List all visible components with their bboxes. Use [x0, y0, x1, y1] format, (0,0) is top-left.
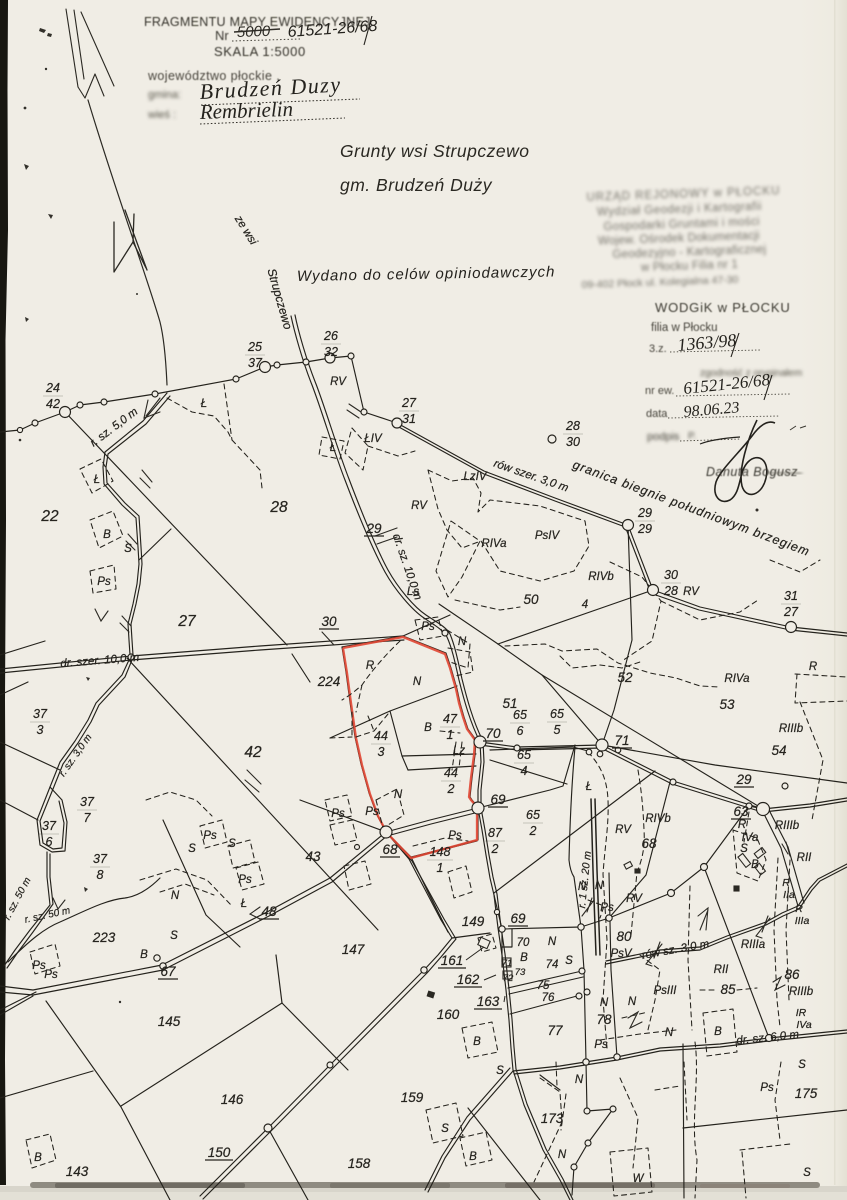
svg-text:Ps: Ps — [44, 969, 58, 981]
svg-text:4: 4 — [521, 764, 528, 778]
svg-text:gm. Brudzeń Duży: gm. Brudzeń Duży — [340, 175, 493, 195]
svg-text:32: 32 — [324, 345, 338, 359]
svg-text:5: 5 — [554, 723, 561, 737]
svg-text:37: 37 — [42, 819, 57, 833]
svg-text:N: N — [665, 1027, 674, 1039]
svg-text:RIIIb: RIIIb — [789, 986, 814, 998]
svg-text:data: data — [646, 408, 668, 420]
svg-text:27: 27 — [401, 396, 417, 410]
svg-text:Ł: Ł — [201, 398, 207, 410]
svg-text:RII: RII — [714, 964, 730, 976]
svg-text:SKALA 1:5000: SKALA 1:5000 — [214, 44, 306, 59]
svg-text:wieś :: wieś : — [147, 109, 176, 121]
svg-text:161: 161 — [441, 953, 464, 968]
svg-text:RIIIb: RIIIb — [775, 820, 800, 832]
svg-text:P.: P. — [688, 431, 696, 442]
svg-text:27: 27 — [177, 613, 197, 630]
svg-text:68: 68 — [641, 836, 657, 851]
svg-text:65: 65 — [550, 707, 564, 721]
svg-text:65: 65 — [526, 808, 540, 822]
svg-text:N: N — [458, 636, 467, 648]
svg-text:31: 31 — [402, 412, 416, 426]
svg-text:223: 223 — [92, 930, 116, 945]
svg-text:26: 26 — [323, 329, 338, 343]
svg-text:28: 28 — [269, 499, 288, 516]
svg-text:IR: IR — [796, 1007, 807, 1019]
svg-text:37: 37 — [80, 795, 95, 809]
svg-text:28: 28 — [663, 584, 678, 598]
svg-text:RV: RV — [330, 376, 347, 388]
svg-text:87: 87 — [488, 826, 503, 840]
svg-text:S: S — [798, 1059, 806, 1071]
svg-text:N: N — [628, 996, 637, 1008]
svg-text:Ps: Ps — [238, 874, 252, 886]
svg-text:3: 3 — [37, 723, 44, 737]
svg-text:Ps: Ps — [421, 621, 435, 633]
svg-text:W: W — [633, 1173, 645, 1185]
svg-text:6: 6 — [46, 835, 53, 849]
svg-text:27: 27 — [783, 605, 799, 619]
svg-text:RV: RV — [683, 586, 700, 598]
svg-text:S: S — [124, 543, 132, 555]
svg-text:R: R — [809, 661, 817, 673]
svg-text:47: 47 — [443, 712, 458, 726]
svg-text:RIIIb: RIIIb — [779, 723, 804, 735]
svg-text:163: 163 — [477, 994, 500, 1009]
svg-text:Ps: Ps — [594, 1039, 608, 1051]
svg-text:148: 148 — [430, 845, 451, 859]
svg-text:Grunty wsi Strupczewo: Grunty wsi Strupczewo — [340, 141, 529, 161]
svg-text:B: B — [714, 1026, 722, 1038]
svg-text:Ps: Ps — [97, 576, 111, 588]
svg-text:N: N — [595, 880, 604, 892]
svg-text:175: 175 — [795, 1086, 818, 1101]
svg-text:150: 150 — [208, 1145, 231, 1160]
svg-text:B: B — [424, 722, 432, 734]
svg-text:42: 42 — [244, 744, 262, 761]
svg-text:28: 28 — [565, 419, 580, 433]
svg-text:73: 73 — [515, 967, 526, 978]
svg-text:3.z.: 3.z. — [649, 343, 667, 355]
svg-text:71: 71 — [614, 733, 629, 748]
svg-text:LzIV: LzIV — [463, 471, 487, 483]
svg-text:147: 147 — [342, 942, 365, 957]
svg-text:RII: RII — [797, 852, 813, 864]
svg-text:Ł: Ł — [94, 474, 100, 486]
svg-text:Ps: Ps — [331, 808, 345, 820]
svg-text:RV: RV — [411, 500, 428, 512]
svg-text:29: 29 — [637, 522, 652, 536]
svg-text:IIIa: IIIa — [795, 915, 810, 927]
svg-text:S: S — [740, 843, 748, 855]
svg-text:S: S — [228, 838, 236, 850]
svg-text:54: 54 — [771, 743, 786, 758]
svg-text:N: N — [575, 1074, 584, 1086]
svg-text:51: 51 — [502, 696, 517, 711]
svg-text:149: 149 — [462, 914, 485, 929]
svg-text:31: 31 — [784, 589, 798, 603]
svg-text:67: 67 — [160, 964, 176, 979]
svg-text:N: N — [394, 789, 403, 801]
svg-text:B: B — [751, 859, 759, 871]
svg-text:4: 4 — [582, 599, 588, 611]
svg-text:1: 1 — [447, 728, 454, 742]
svg-text:RIVb: RIVb — [645, 813, 671, 825]
svg-text:Ps: Ps — [448, 830, 462, 842]
svg-text:1: 1 — [437, 861, 444, 875]
svg-text:R: R — [366, 660, 374, 672]
svg-text:8: 8 — [97, 868, 104, 882]
svg-text:R: R — [738, 819, 746, 831]
svg-text:44: 44 — [374, 729, 388, 743]
svg-text:68: 68 — [382, 842, 398, 857]
svg-text:S: S — [188, 843, 196, 855]
svg-text:6: 6 — [517, 724, 524, 738]
svg-text:71: 71 — [502, 958, 513, 969]
svg-text:29: 29 — [735, 772, 752, 787]
svg-text:2: 2 — [529, 824, 537, 838]
svg-text:N: N — [413, 676, 422, 688]
svg-text:N: N — [548, 936, 557, 948]
svg-text:78: 78 — [596, 1012, 612, 1027]
svg-text:IIa: IIa — [783, 889, 795, 901]
svg-text:B: B — [520, 952, 528, 964]
svg-text:RV: RV — [615, 824, 632, 836]
svg-text:RV: RV — [626, 893, 643, 905]
svg-text:Ł: Ł — [330, 442, 336, 454]
svg-text:70: 70 — [485, 726, 501, 741]
svg-text:B: B — [469, 1151, 477, 1163]
svg-text:gmina:: gmina: — [148, 89, 181, 101]
svg-text:72: 72 — [503, 973, 514, 984]
svg-text:86: 86 — [784, 967, 800, 982]
svg-text:2: 2 — [447, 782, 455, 796]
svg-text:B: B — [473, 1036, 481, 1048]
svg-text:159: 159 — [401, 1090, 424, 1105]
svg-text:37: 37 — [248, 356, 263, 370]
svg-text:29: 29 — [365, 521, 382, 536]
svg-text:podpis: podpis — [647, 431, 680, 443]
svg-text:S: S — [565, 955, 573, 967]
svg-text:WODGiK w PŁOCKU: WODGiK w PŁOCKU — [655, 300, 791, 315]
svg-text:70: 70 — [517, 937, 530, 949]
svg-text:S: S — [803, 1167, 811, 1179]
svg-text:N: N — [558, 1149, 567, 1161]
svg-text:53: 53 — [719, 697, 735, 712]
svg-text:2: 2 — [491, 842, 499, 856]
svg-text:Ł: Ł — [586, 781, 592, 793]
svg-text:N: N — [600, 997, 609, 1009]
svg-text:RIVb: RIVb — [588, 571, 614, 583]
svg-text:RIIIa: RIIIa — [741, 939, 765, 951]
svg-text:52: 52 — [617, 670, 633, 685]
svg-text:160: 160 — [437, 1007, 460, 1022]
svg-text:B: B — [140, 949, 148, 961]
svg-text:76: 76 — [542, 992, 555, 1004]
svg-text:69: 69 — [510, 911, 526, 926]
svg-text:65: 65 — [517, 748, 531, 762]
svg-text:44: 44 — [444, 766, 458, 780]
svg-text:24: 24 — [45, 381, 60, 395]
svg-text:85: 85 — [720, 982, 736, 997]
svg-text:S: S — [170, 930, 178, 942]
svg-text:43: 43 — [305, 849, 321, 864]
svg-text:Ps: Ps — [365, 806, 379, 818]
svg-text:Nr: Nr — [215, 28, 229, 43]
svg-text:48: 48 — [261, 904, 277, 919]
svg-text:158: 158 — [348, 1156, 371, 1171]
svg-text:PsIII: PsIII — [653, 985, 677, 997]
svg-text:173: 173 — [541, 1111, 564, 1126]
svg-text:75: 75 — [537, 980, 550, 992]
svg-text:R: R — [795, 903, 803, 915]
svg-text:Rembrielin: Rembrielin — [198, 97, 293, 124]
svg-text:143: 143 — [66, 1164, 89, 1179]
svg-text:Ł: Ł — [241, 898, 247, 910]
svg-text:RIVa: RIVa — [724, 673, 749, 685]
svg-text:S: S — [441, 1123, 449, 1135]
svg-text:74: 74 — [546, 959, 559, 971]
svg-text:29: 29 — [637, 506, 652, 520]
svg-text:B: B — [103, 529, 111, 541]
svg-text:145: 145 — [158, 1014, 181, 1029]
svg-text:30: 30 — [566, 435, 580, 449]
svg-text:PsV: PsV — [610, 948, 632, 960]
svg-text:37: 37 — [93, 852, 108, 866]
svg-text:30: 30 — [321, 614, 337, 629]
svg-text:37: 37 — [33, 707, 48, 721]
svg-text:7: 7 — [84, 811, 92, 825]
svg-text:RIVa: RIVa — [481, 538, 506, 550]
svg-text:N: N — [171, 890, 180, 902]
svg-text:nr ew.: nr ew. — [645, 385, 674, 397]
svg-text:Ps: Ps — [203, 830, 217, 842]
svg-text:25: 25 — [247, 340, 262, 354]
svg-text:IVa: IVa — [796, 1019, 812, 1031]
svg-text:22: 22 — [40, 508, 59, 525]
svg-text:B: B — [34, 1152, 42, 1164]
svg-text:R: R — [782, 877, 790, 889]
svg-text:69: 69 — [490, 792, 506, 807]
svg-text:30: 30 — [664, 568, 678, 582]
svg-text:77: 77 — [547, 1023, 563, 1038]
svg-text:42: 42 — [46, 397, 60, 411]
svg-text:63: 63 — [733, 804, 749, 819]
svg-text:Lz: Lz — [453, 745, 465, 757]
svg-text:ŁIV: ŁIV — [364, 433, 383, 445]
svg-text:Ps: Ps — [760, 1082, 774, 1094]
svg-text:3: 3 — [378, 745, 385, 759]
svg-text:S: S — [496, 1065, 504, 1077]
svg-text:Ps: Ps — [600, 902, 614, 914]
svg-text:80: 80 — [616, 929, 632, 944]
svg-text:162: 162 — [457, 972, 480, 987]
svg-text:146: 146 — [221, 1092, 244, 1107]
svg-text:50: 50 — [523, 592, 539, 607]
svg-text:224: 224 — [317, 674, 341, 689]
svg-text:PsIV: PsIV — [535, 530, 561, 542]
